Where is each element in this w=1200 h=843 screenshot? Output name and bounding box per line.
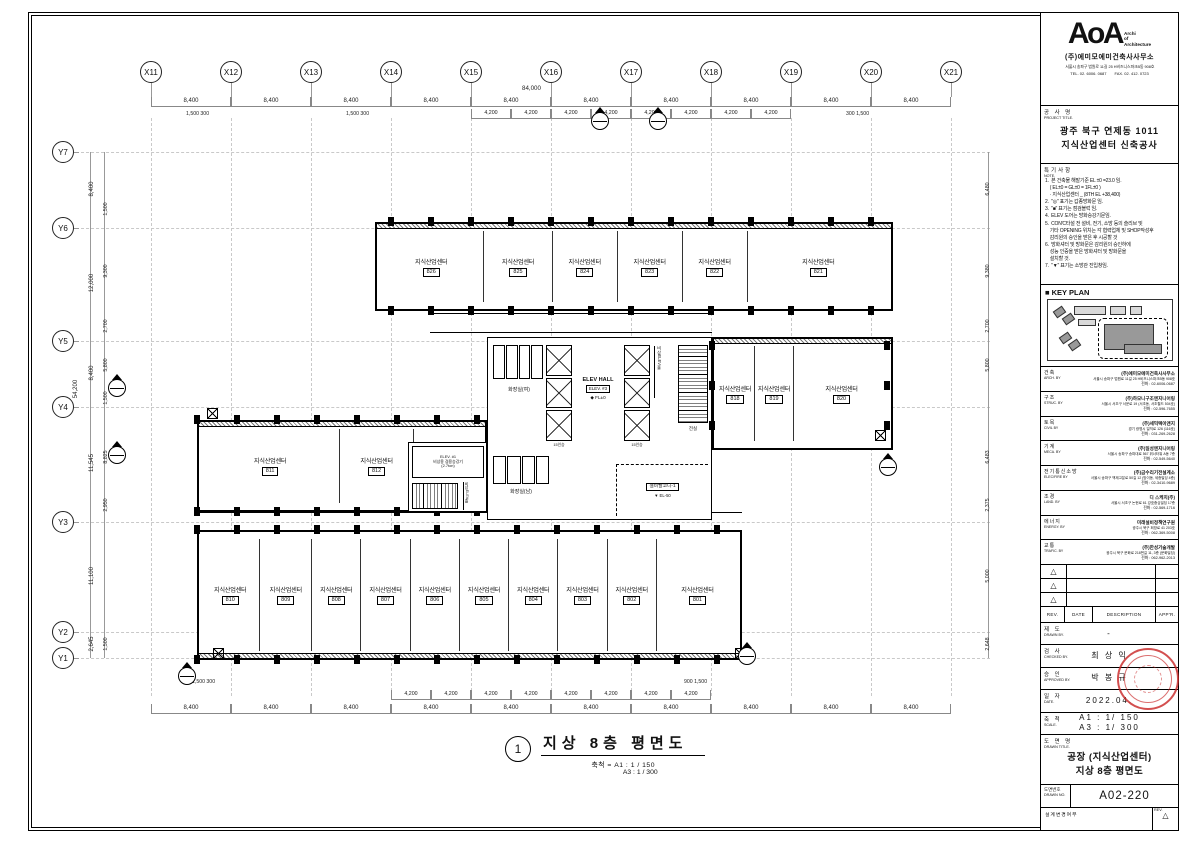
stair-east: [678, 345, 708, 423]
consultant-company: 미래설비정책연구원: [1069, 520, 1175, 526]
room-number: 802: [623, 596, 640, 605]
consultant-tel: 전화 : 031-269-2628: [1069, 432, 1175, 437]
dim-label: 8,400: [311, 704, 391, 713]
column: [668, 217, 674, 226]
dim-right: 2,700: [985, 306, 991, 346]
logo-section: AoA Archi of Architecture (주)에미모에미건축사사무소…: [1041, 13, 1178, 106]
drawing-title-label-en: DRAWN TITLE.: [1044, 745, 1072, 749]
room-name: 지식산업센터: [419, 585, 451, 594]
column: [884, 341, 890, 350]
dim-right: 6,480: [985, 169, 991, 209]
project-label-en: PROJECT TITLE.: [1044, 116, 1073, 120]
note-line: 6. 방화셔터 및 방화문은 감리원의 승인하에: [1045, 242, 1176, 249]
room-unit: 지식산업센터822: [682, 231, 747, 302]
room-unit: 지식산업센터823: [617, 231, 682, 302]
signoff-value: A1 : 1/ 150 A3 : 1/ 300: [1041, 713, 1178, 734]
grid-bubble-X18: X18: [700, 61, 722, 83]
column: [884, 381, 890, 390]
room-name: 지식산업센터: [254, 456, 286, 465]
room-name: 지식산업센터: [616, 585, 648, 594]
section-marker-flag: [182, 662, 192, 668]
emergency-elev-hall-west-label: 비상ELEV홀: [463, 482, 470, 510]
dim-label: 8,400: [231, 97, 311, 106]
consultant-role: 에너지ENERGY. BY: [1044, 518, 1065, 529]
room-name: 지식산업센터: [698, 257, 730, 266]
section-marker-flag: [742, 642, 752, 648]
column: [388, 306, 394, 315]
column: [468, 217, 474, 226]
wall-hatch: [199, 422, 485, 427]
revision-row: △: [1041, 579, 1178, 593]
drawing-title-header: 도 면 명 DRAWN TITLE.: [1044, 737, 1072, 749]
signoff-value: -: [1041, 623, 1178, 644]
dim-right: 6,483: [985, 437, 991, 477]
elev-hall-label: ELEV HALL: [582, 377, 613, 383]
room-unit: 지식산업센터804: [508, 539, 557, 651]
consultant-address: 서울시 송파구 송파대로 567 위너타워 A동 7층: [1077, 452, 1175, 457]
grid-bubble-X13: X13: [300, 61, 322, 83]
dim-label: 4,200: [431, 690, 471, 699]
room-number: 808: [328, 596, 345, 605]
dim-left-total: 54,200: [73, 369, 79, 409]
footer-section: 설계변경여부 REV. △: [1041, 808, 1178, 830]
drawing-number-section: 도면번호 DRAWN NO. A02-220: [1041, 785, 1178, 808]
check-block-marker: [213, 648, 224, 659]
column: [508, 306, 514, 315]
dim-left: 11,100: [89, 556, 95, 596]
firm-contact: TEL. 02. 6006. 0687 FAX. 02. 412. 0723: [1070, 71, 1149, 76]
consultant-role-ko: 에너지: [1044, 518, 1065, 525]
consultant-row: 토목CIVIL BY(주)세믹텍이앤지경기 광명시 일직로 126 (116호)…: [1041, 417, 1178, 442]
note-line: 5. CON'C타설 전 설비, 전기, 소방 등의 슬리브 및: [1045, 221, 1176, 228]
room-number: 823: [641, 268, 658, 277]
consultant-row: 조경LAND. BY디 스케치(주)서울시 서초구 논현로 61 강호중심빌딩 …: [1041, 491, 1178, 516]
project-label-ko: 공 사 명: [1044, 108, 1073, 116]
grid-bubble-X15: X15: [460, 61, 482, 83]
dim-label: 8,400: [551, 704, 631, 713]
room-number: 804: [525, 596, 542, 605]
architect-seal-stamp: [1117, 648, 1179, 710]
consultant-role: 토목CIVIL BY: [1044, 419, 1058, 430]
plan-caption-text: 지상 8층 평면도 축척 = A1 : 1 / 150 A3 : 1 / 300: [541, 732, 705, 776]
column: [708, 306, 714, 315]
signoff-row: 축 척SCALE.A1 : 1/ 150 A3 : 1/ 300: [1041, 713, 1178, 734]
room-unit: 지식산업센터808: [311, 539, 360, 651]
column: [474, 655, 480, 664]
elevator-capacity-right: 15인승: [624, 443, 650, 448]
drawing-title-section: 도 면 명 DRAWN TITLE. 공장 (지식산업센터) 지상 8층 평면도: [1041, 735, 1178, 785]
room-name: 지식산업센터: [681, 585, 713, 594]
room-number: 818: [726, 395, 743, 404]
consultant-role: 건축ARCH. BY: [1044, 369, 1061, 380]
column: [748, 306, 754, 315]
consultant-row: 기계MECA. BY(주)일성엔지니어링서울시 송파구 송파대로 567 위너타…: [1041, 441, 1178, 466]
dim-label: 4,200: [511, 109, 551, 118]
room-name: 지식산업센터: [758, 384, 790, 393]
column: [634, 525, 640, 534]
emergency-elevator-box: ELEV. #1 비상용 겸용승강기 (2.7ton): [412, 446, 484, 478]
consultant-company: (주)세믹텍이앤지: [1069, 421, 1175, 427]
column: [354, 507, 360, 516]
drawing-title-line2: 지상 8층 평면도: [1041, 765, 1178, 779]
dim-right: 2,648: [985, 624, 991, 664]
dim-label: 4,200: [711, 109, 751, 118]
dim-pair: 1,500 300: [186, 111, 209, 117]
dim-right: 5,800: [985, 345, 991, 385]
consultant-role: 구조STRUC. BY: [1044, 394, 1063, 405]
room-name: 지식산업센터: [415, 257, 447, 266]
room-name: 지식산업센터: [802, 257, 834, 266]
elevator-cell: [546, 410, 572, 441]
consultant-row: 에너지ENERGY. BY미래설비정책연구원광주시 북구 희망로 41 203호…: [1041, 516, 1178, 541]
aoa-logo-tagline: Archi of Architecture: [1124, 31, 1151, 47]
dim-label: 4,200: [591, 690, 631, 699]
plan-scale-a1: 축척 = A1 : 1 / 150: [541, 759, 705, 769]
firm-tel: TEL. 02. 6006. 0687: [1070, 71, 1106, 76]
revision-appr-cell: [1156, 593, 1178, 606]
rooms-row: 지식산업센터810지식산업센터809지식산업센터808지식산업센터807지식산업…: [201, 539, 738, 651]
column: [394, 525, 400, 534]
column: [474, 415, 480, 424]
column: [274, 655, 280, 664]
room-number: 821: [810, 268, 827, 277]
consultant-address: 광주시 북구 문화로 218번길 11, 3층 (문화빌딩): [1077, 551, 1175, 556]
consultant-role-ko: 토목: [1044, 419, 1058, 426]
plan-title: 지상 8층 평면도: [541, 732, 705, 756]
consultant-address: 광주시 북구 희망로 41 203호: [1077, 526, 1175, 531]
column: [634, 655, 640, 664]
column: [514, 525, 520, 534]
stair-west: [412, 483, 458, 509]
elevator-bank-left: [546, 345, 572, 441]
revision-triangle-icon: △: [1041, 579, 1067, 592]
plan-caption: 1 지상 8층 평면도 축척 = A1 : 1 / 150 A3 : 1 / 3…: [505, 732, 705, 776]
notes-list: 1. 본 건축물 해발기준 EL ±0 =23.0 임. ( EL±0 = GL…: [1045, 178, 1176, 270]
wall-hatch: [199, 653, 740, 658]
consultant-info: (주)세믹텍이앤지경기 광명시 일직로 126 (116호)전화 : 031-2…: [1069, 419, 1175, 440]
column: [714, 655, 720, 664]
grid-bubble-Y2: Y2: [52, 621, 74, 643]
column: [709, 421, 715, 430]
column: [354, 525, 360, 534]
revision-desc-cell: [1067, 565, 1156, 578]
revision-triangle-icon: △: [1041, 593, 1067, 606]
consultant-role-en: STRUC. BY: [1044, 401, 1063, 405]
consultant-role-en: MECA. BY: [1044, 450, 1061, 454]
room-number: 822: [706, 268, 723, 277]
dim-label: 4,200: [631, 690, 671, 699]
room-name: 지식산업센터: [566, 585, 598, 594]
elev-no-label: ELEV. #3: [586, 385, 610, 393]
revision-header-cell: REV.: [1041, 607, 1065, 622]
dim-label: 8,400: [711, 97, 791, 106]
aoa-logo: AoA: [1068, 19, 1122, 49]
column: [194, 655, 200, 664]
grid-bubble-X11: X11: [140, 61, 162, 83]
dim-row-bottom-sub: 4,2004,2004,2004,2004,2004,2004,2004,200: [391, 690, 711, 700]
room-unit: 지식산업센터803: [557, 539, 606, 651]
consultants-section: 건축ARCH. BY(주)에미모에미건축사사무소서울시 송파구 법원로 11길 …: [1041, 367, 1178, 565]
column: [354, 655, 360, 664]
revision-table-header: REV.DATEDESCRIPTIONAPP'R.: [1041, 607, 1178, 623]
column: [428, 217, 434, 226]
room-name: 지식산업센터: [719, 384, 751, 393]
dim-label: 4,200: [671, 690, 711, 699]
grid-bubble-Y4: Y4: [52, 396, 74, 418]
consultant-role-ko: 교통: [1044, 542, 1063, 549]
room-name: 지식산업센터: [568, 257, 600, 266]
column: [514, 655, 520, 664]
notes-section: 특기사항 NOTE. 1. 본 건축물 해발기준 EL ±0 =23.0 임. …: [1041, 164, 1178, 285]
column: [434, 525, 440, 534]
dim-label: 4,200: [471, 109, 511, 118]
room-unit: 지식산업센터802: [607, 539, 656, 651]
column: [674, 525, 680, 534]
room-number: 811: [262, 467, 279, 476]
room-number: 826: [423, 268, 440, 277]
equipment-balcony: 설비발코니-1 ▼ EL-50: [616, 464, 708, 516]
consultant-row: 전기통신소방ELEC/FIRE BY(주)금수리기전설계소서울시 송파구 백제고…: [1041, 466, 1178, 491]
revision-row: △: [1041, 565, 1178, 579]
consultant-role-en: ENERGY. BY: [1044, 525, 1065, 529]
room-number: 824: [576, 268, 593, 277]
column: [714, 525, 720, 534]
dim-label: 4,200: [551, 109, 591, 118]
dim-label: 8,400: [791, 97, 871, 106]
section-marker: [738, 647, 756, 665]
note-line: 성능 인증을 받은 방화셔터 및 방화문을: [1045, 249, 1176, 256]
grid-bubble-Y6: Y6: [52, 217, 74, 239]
consultant-tel: 전화 : 02-549-5640: [1069, 457, 1175, 462]
room-number: 819: [765, 395, 782, 404]
key-plan-map: [1047, 299, 1173, 361]
column: [708, 217, 714, 226]
consultant-role-ko: 조경: [1044, 493, 1060, 500]
column: [594, 655, 600, 664]
room-name: 지식산업센터: [502, 257, 534, 266]
plan-scale-a3: A3 : 1 / 300: [541, 769, 705, 776]
column: [434, 415, 440, 424]
column: [194, 507, 200, 516]
column: [234, 415, 240, 424]
toilet-stalls-men: [493, 456, 549, 484]
toilet-women-label: 화장실(여): [490, 386, 548, 393]
dim-left: 12,000: [89, 263, 95, 303]
column: [314, 525, 320, 534]
floor-plan-area: 화장실(여) 15인승 ELEV HALL ELEV. #3 ◆ FL±0 15…: [0, 0, 1200, 843]
consultant-info: (주)에미모에미건축사사무소서울시 송파구 법원로 11길 25 H비즈니스파크…: [1069, 369, 1175, 390]
project-name-line2: 지식산업센터 신축공사: [1041, 138, 1178, 152]
grid-bubble-Y7: Y7: [52, 141, 74, 163]
note-line: 감리원의 승인을 받은 후 시공할 것: [1045, 235, 1176, 242]
grid-bubble-Y3: Y3: [52, 511, 74, 533]
dim-total-top: 84,000: [522, 85, 541, 92]
column: [194, 525, 200, 534]
room-name: 지식산업센터: [517, 585, 549, 594]
consultant-tel: 전화 : 02-569-1716: [1069, 506, 1175, 511]
dim-label: 8,400: [711, 704, 791, 713]
project-title-section: 공 사 명 PROJECT TITLE. 광주 북구 연제동 1011 지식산업…: [1041, 106, 1178, 164]
section-marker-flag: [595, 107, 605, 113]
column: [828, 306, 834, 315]
dim-left-sub: 2,700: [103, 306, 109, 346]
consultant-tel: 전화 : 02-596-7655: [1069, 407, 1175, 412]
logo-tag-3: Architecture: [1124, 42, 1151, 47]
revision-desc-cell: [1067, 593, 1156, 606]
room-number: 812: [368, 467, 385, 476]
elevator-bank-right: [624, 345, 650, 441]
column: [314, 655, 320, 664]
dim-label: 4,200: [471, 690, 511, 699]
column: [428, 306, 434, 315]
note-line: 기타 OPENING 위치는 각 협력업체 및 SHOP작성후: [1045, 228, 1176, 235]
dim-pair: 1,500 300: [192, 679, 215, 685]
footer-rev-cell: REV. △: [1152, 808, 1178, 830]
elevator-hall: ELEV HALL ELEV. #3 ◆ FL±0: [574, 345, 622, 401]
column: [354, 415, 360, 424]
section-marker-flag: [653, 107, 663, 113]
section-marker: [649, 112, 667, 130]
dim-label: 8,400: [231, 704, 311, 713]
room-unit: 지식산업센터801: [656, 539, 738, 651]
revision-row: △: [1041, 593, 1178, 606]
room-unit: 지식산업센터824: [552, 231, 617, 302]
drawing-title-label-ko: 도 면 명: [1044, 737, 1072, 745]
dim-left-sub: 1,500: [103, 189, 109, 229]
consultant-tel: 전화 : 02-3410-9689: [1069, 481, 1175, 486]
column: [674, 655, 680, 664]
dim-left-sub: 1,500: [103, 624, 109, 664]
equipment-balcony-label: 설비발코니-1: [646, 483, 678, 492]
check-block-marker: [207, 408, 218, 419]
room-unit: 지식산업센터819: [754, 346, 793, 441]
consultant-info: (주)하모니구조엔지니어링서울시 서초구 서운로 19 (서초동, 서초월드 5…: [1069, 394, 1175, 415]
wing-east: 지식산업센터818지식산업센터819지식산업센터820: [712, 337, 893, 450]
rooms-row: 지식산업센터818지식산업센터819지식산업센터820: [716, 346, 889, 441]
section-marker: [591, 112, 609, 130]
dim-right: 2,375: [985, 485, 991, 525]
room-number: 803: [574, 596, 591, 605]
consultant-role-en: ARCH. BY: [1044, 376, 1061, 380]
drawing-number: A02-220: [1071, 785, 1178, 807]
room-name: 지식산업센터: [214, 585, 246, 594]
revision-triangle-icon: △: [1162, 812, 1168, 820]
grid-bubble-Y1: Y1: [52, 647, 74, 669]
grid-bubble-Y5: Y5: [52, 330, 74, 352]
consultant-info: 미래설비정책연구원광주시 북구 희망로 41 203호전화 : 062-369-…: [1069, 518, 1175, 539]
column: [234, 655, 240, 664]
column: [468, 306, 474, 315]
dim-right: 9,380: [985, 251, 991, 291]
consultant-role-en: LAND. BY: [1044, 500, 1060, 504]
column: [868, 217, 874, 226]
section-marker: [178, 667, 196, 685]
dim-pair: 900 1,500: [684, 679, 707, 685]
consultant-address: 서울시 송파구 백제고분로 50길 12 (방이동, 세종빌딩 4층): [1077, 477, 1175, 482]
column: [434, 655, 440, 664]
corridor-north: [430, 313, 712, 333]
consultant-tel: 전화 : 062-369-5008: [1069, 531, 1175, 536]
column: [554, 525, 560, 534]
consultant-address: 경기 광명시 일직로 126 (116호): [1077, 427, 1175, 432]
grid-line-Y7: [76, 152, 990, 153]
column: [628, 217, 634, 226]
dim-left: 2,645: [89, 624, 95, 664]
column: [388, 217, 394, 226]
grid-bubble-X19: X19: [780, 61, 802, 83]
drawing-no-label-en: DRAWN NO.: [1044, 793, 1065, 797]
dim-label: 8,400: [551, 97, 631, 106]
room-number: 801: [689, 596, 706, 605]
consultant-tel: 전화 : 02-6006-0687: [1069, 382, 1175, 387]
column: [508, 217, 514, 226]
consultant-role-ko: 건축: [1044, 369, 1061, 376]
notes-header: 특기사항 NOTE.: [1044, 166, 1072, 178]
emergency-elev-hall-label: 비상ELEV홀: [654, 346, 662, 398]
consultant-role: 교통TRAFIC. BY: [1044, 542, 1063, 553]
dim-label: 8,400: [631, 704, 711, 713]
dim-pair: 300 1,500: [846, 111, 869, 117]
balcony-level-marker: ▼ EL-50: [654, 493, 670, 498]
grid-bubble-X16: X16: [540, 61, 562, 83]
grid-bubble-X20: X20: [860, 61, 882, 83]
dim-label: 4,200: [671, 109, 711, 118]
column: [668, 306, 674, 315]
note-line: 4. ELEV 도어는 방화승강기문임.: [1045, 213, 1176, 220]
drawing-title-line1: 공장 (지식산업센터): [1041, 751, 1178, 765]
core-extension-west: ELEV. #1 비상용 겸용승강기 (2.7ton) 비상ELEV홀: [408, 442, 487, 512]
consultant-role: 조경LAND. BY: [1044, 493, 1060, 504]
section-marker: [108, 379, 126, 397]
column: [394, 655, 400, 664]
column: [588, 217, 594, 226]
room-unit: 지식산업센터812: [339, 429, 413, 503]
room-number: 805: [475, 596, 492, 605]
room-name: 지식산업센터: [270, 585, 302, 594]
dim-left-sub: 9,300: [103, 251, 109, 291]
column: [314, 507, 320, 516]
notes-label-ko: 특기사항: [1044, 166, 1072, 174]
consultant-company: (주)일성엔지니어링: [1069, 446, 1175, 452]
room-unit: 지식산업센터811: [201, 429, 339, 503]
dim-label: 8,400: [471, 704, 551, 713]
column: [234, 525, 240, 534]
room-unit: 지식산업센터810: [201, 539, 259, 651]
consultant-info: (주)금수리기전설계소서울시 송파구 백제고분로 50길 12 (방이동, 세종…: [1069, 468, 1175, 489]
column: [194, 415, 200, 424]
room-name: 지식산업센터: [825, 384, 857, 393]
wall-hatch: [714, 339, 891, 344]
section-marker: [108, 446, 126, 464]
room-number: 810: [222, 596, 239, 605]
dim-label: 8,400: [391, 97, 471, 106]
column: [474, 525, 480, 534]
column: [314, 415, 320, 424]
column: [274, 415, 280, 424]
consultant-role-ko: 구조: [1044, 394, 1063, 401]
section-marker-flag: [112, 374, 122, 380]
elevator-capacity-left: 15인승: [546, 443, 572, 448]
elevator-cell: [546, 345, 572, 376]
dim-right: 5,000: [985, 556, 991, 596]
dim-label: 8,400: [151, 97, 231, 106]
room-name: 지식산업센터: [468, 585, 500, 594]
room-unit: 지식산업센터806: [410, 539, 459, 651]
floor-level-marker: ◆ FL±0: [590, 395, 605, 401]
revision-triangle-icon: △: [1041, 565, 1067, 578]
room-number: 820: [833, 395, 850, 404]
plan-number-bubble: 1: [505, 736, 531, 762]
